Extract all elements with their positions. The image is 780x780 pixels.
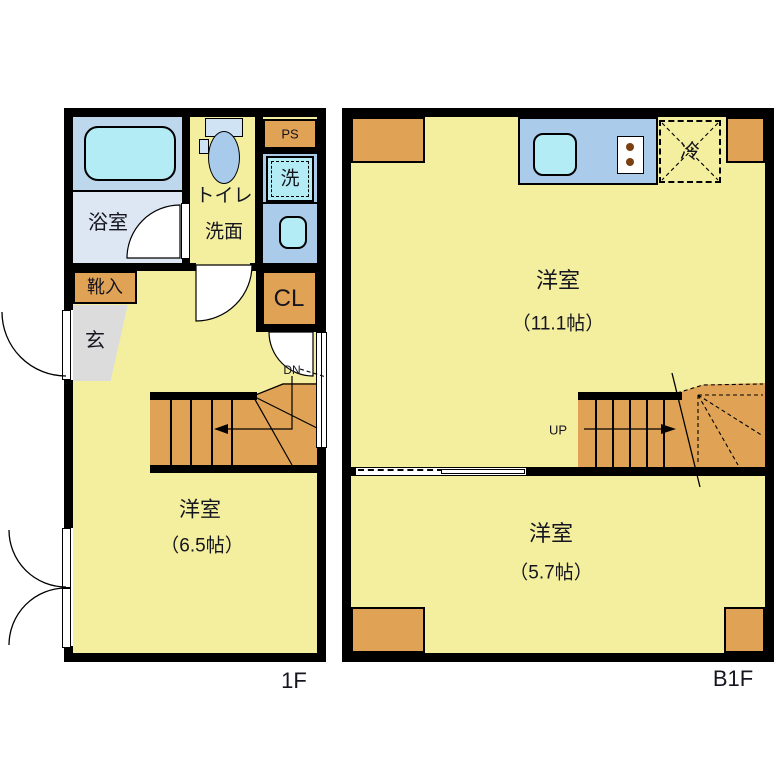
stairs-down-label: DN (283, 364, 300, 376)
wall-b1f-bottom (342, 653, 774, 662)
b1f-corner-block-bottom-left (351, 607, 425, 653)
stairs-up-label: UP (549, 424, 567, 437)
bathroom-door-leaf (181, 203, 190, 259)
stairs-b1f-step-divider (663, 400, 665, 467)
fridge-label: 冷 (680, 142, 700, 162)
sliding-door-panel (441, 469, 525, 474)
wall-1f-top (64, 108, 326, 117)
french-door-lower-arc (9, 588, 66, 645)
b1f-corner-block-top-left (351, 117, 425, 163)
stairs-1f-step-divider (170, 399, 172, 465)
room-1f-size-label: （6.5帖） (160, 537, 243, 556)
stove-burner (626, 158, 634, 166)
french-door-upper-leaf (62, 528, 71, 588)
bathtub (84, 126, 176, 181)
wall-b1f-top (342, 108, 774, 117)
room-b1f-lower-size-label: （5.7帖） (509, 564, 592, 583)
bathroom-zone-divider (73, 190, 182, 192)
closet-left-wall (256, 266, 262, 331)
wall-toilet-wash (255, 117, 263, 263)
washroom-label: 洗面 (205, 223, 243, 242)
french-door-lower-leaf (62, 588, 71, 648)
wall-1f-right-upper (317, 108, 326, 332)
stairs-b1f-step-divider (612, 400, 614, 467)
wall-b1f-right (765, 108, 774, 662)
entrance-door-arc (2, 312, 66, 376)
closet-label: CL (274, 287, 305, 311)
bathroom-label: 浴室 (88, 213, 128, 233)
stairs-1f-straight-flight (150, 399, 253, 466)
toilet-bowl (208, 131, 240, 184)
wall-hall-left-segment (64, 263, 196, 271)
room-b1f-lower-label: 洋室 (529, 523, 573, 545)
floor-1f-name: 1F (281, 670, 307, 692)
room-b1f-upper-label: 洋室 (536, 270, 580, 292)
vanity-sink (279, 216, 307, 249)
window-1f-right (316, 332, 327, 448)
b1f-corner-block-top-right (726, 117, 765, 163)
floor-b1f-name: B1F (713, 668, 753, 690)
stove (617, 136, 644, 174)
wall-1f-left-upper (64, 108, 73, 310)
pipe-space-label: PS (281, 128, 298, 141)
stairs-1f-step-divider (190, 399, 192, 465)
stairs-b1f-step-divider (595, 400, 597, 467)
stairs-1f-winder (253, 383, 317, 467)
washer-sink-divider (263, 202, 317, 204)
b1f-corner-block-bottom-right (724, 607, 765, 653)
sliding-door-track-dashed (358, 469, 443, 471)
stairs-b1f-step-divider (629, 400, 631, 467)
window-1f-right-mullion (321, 333, 322, 447)
wall-b1f-left (342, 108, 351, 662)
toilet-label: トイレ (195, 187, 252, 206)
stairs-1f-top-edge (150, 392, 257, 400)
shoe-cabinet-label: 靴入 (87, 278, 123, 296)
wall-1f-right-lower (317, 448, 326, 662)
stairs-b1f-winder (677, 383, 765, 467)
kitchen-sink (533, 133, 577, 176)
entrance-door-leaf (62, 310, 71, 380)
stairs-1f-bottom-edge (150, 465, 317, 473)
room-1f-label: 洋室 (179, 500, 221, 521)
wall-bath-toilet-upper (182, 117, 190, 203)
wall-hall-right-segment (250, 263, 326, 271)
stove-burner (626, 143, 634, 151)
wall-1f-bottom (64, 653, 326, 662)
pipe-space-bottom-wall (255, 149, 326, 154)
washer-label: 洗 (280, 170, 299, 189)
floorplan-canvas: 浴室 トイレ 洗面 PS 洗 靴入 玄 CL DN 洋室 （6.5帖） 1F 冷… (0, 0, 780, 780)
stairs-b1f-step-divider (646, 400, 648, 467)
stairs-1f-step-divider (231, 399, 233, 465)
stairs-b1f-top-edge (578, 392, 682, 400)
wall-1f-left-middle (64, 380, 73, 528)
entrance-label: 玄 (85, 331, 105, 351)
french-door-upper-arc (9, 530, 66, 587)
room-b1f-upper-size-label: （11.1帖） (512, 315, 605, 334)
stairs-1f-step-divider (211, 399, 213, 465)
